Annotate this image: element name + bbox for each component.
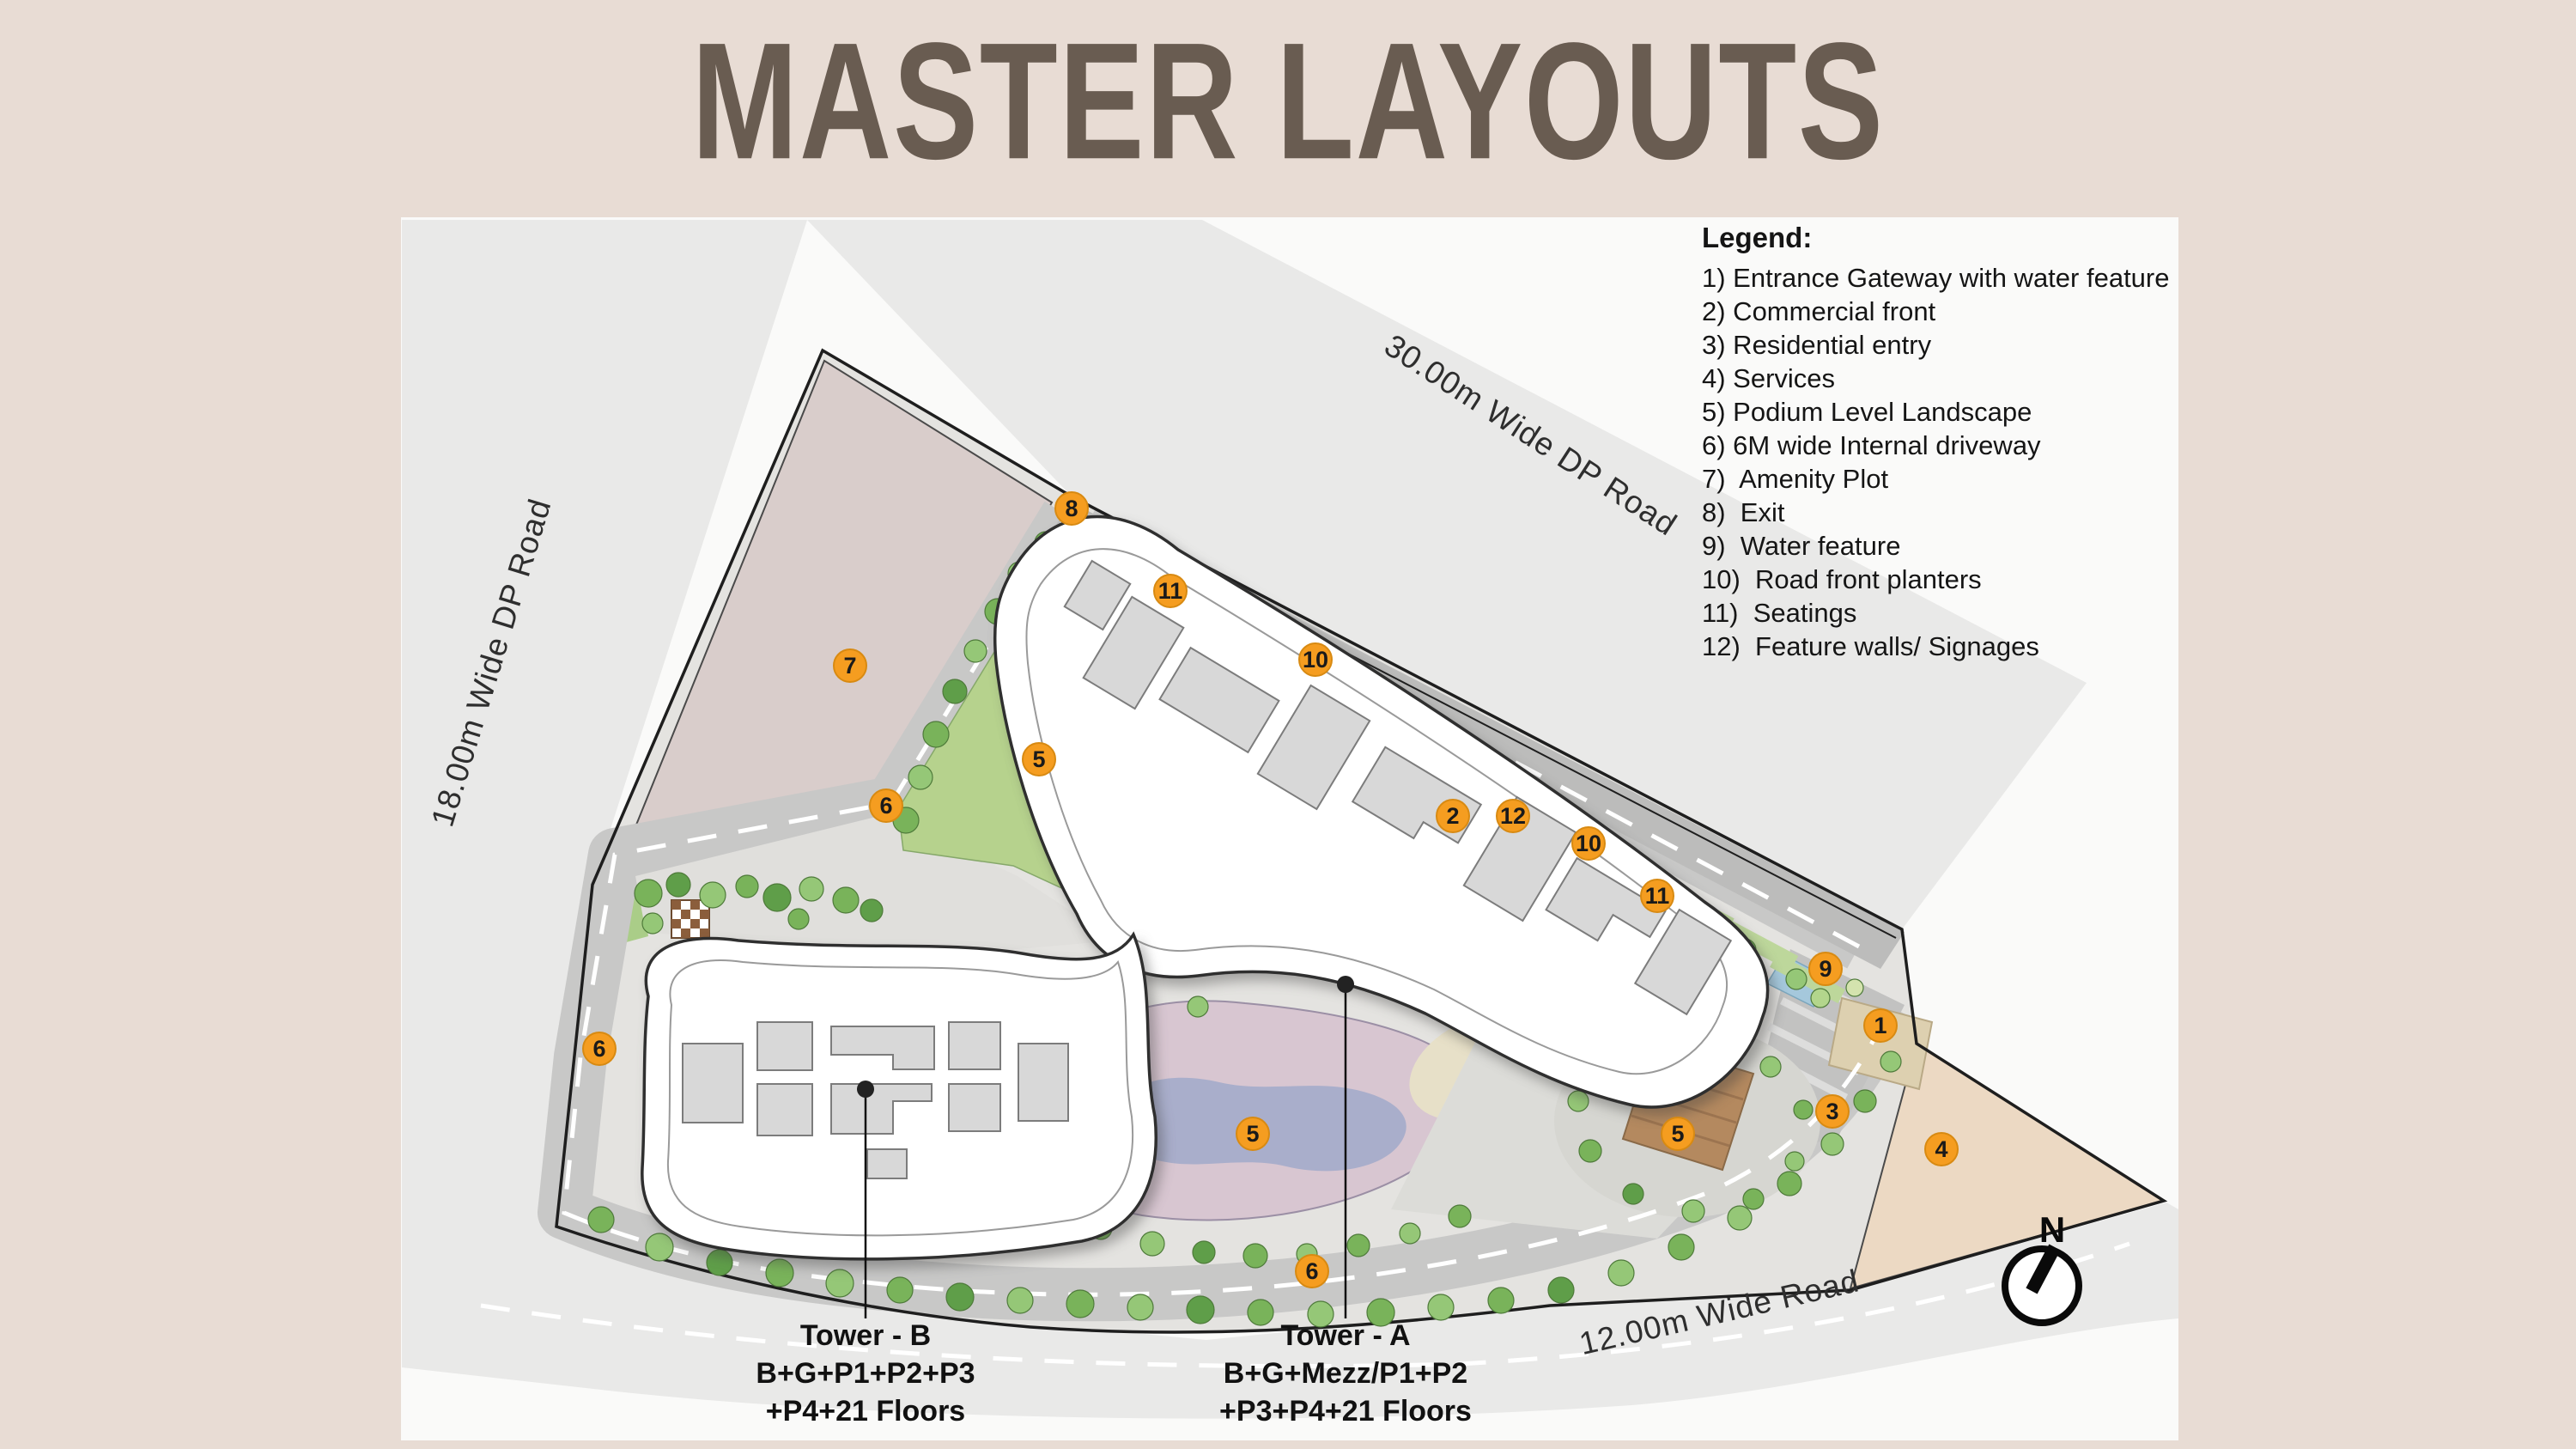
tree-icon: [1880, 1051, 1901, 1072]
svg-text:5: 5: [1671, 1121, 1684, 1147]
tree-icon: [826, 1269, 854, 1297]
plan-marker-5: 5: [1023, 743, 1055, 776]
plan-marker-10: 10: [1572, 827, 1605, 860]
tree-icon: [1140, 1232, 1164, 1256]
tower-b-name: Tower - B: [800, 1319, 931, 1352]
site-plan-drawing: Tower - B B+G+P1+P2+P3 +P4+21 Floors Tow…: [0, 0, 2576, 1449]
tree-icon: [646, 1233, 673, 1261]
tree-icon: [1568, 1091, 1589, 1111]
legend-item: 6) 6M wide Internal driveway: [1702, 429, 2217, 462]
tree-icon: [860, 899, 883, 922]
tower-a-name: Tower - A: [1280, 1319, 1410, 1352]
plan-marker-5: 5: [1236, 1117, 1269, 1150]
tree-icon: [1187, 1296, 1214, 1324]
plan-marker-1: 1: [1864, 1009, 1897, 1042]
tree-icon: [1785, 1152, 1804, 1171]
tree-icon: [1347, 1234, 1370, 1257]
legend-item: 12) Feature walls/ Signages: [1702, 630, 2217, 663]
tree-icon: [588, 1207, 614, 1233]
plan-marker-7: 7: [834, 649, 866, 682]
tree-icon: [1623, 1184, 1643, 1204]
svg-text:5: 5: [1032, 746, 1045, 772]
legend-header: Legend:: [1702, 222, 2217, 254]
tree-icon: [1243, 1244, 1267, 1268]
tree-icon: [1811, 989, 1830, 1008]
plan-marker-8: 8: [1055, 492, 1088, 525]
svg-text:12: 12: [1500, 803, 1526, 829]
tree-icon: [1007, 1288, 1033, 1313]
plan-marker-2: 2: [1437, 800, 1469, 832]
tree-icon: [1488, 1288, 1514, 1313]
svg-text:6: 6: [1305, 1258, 1318, 1284]
tree-icon: [908, 765, 933, 789]
tree-icon: [1188, 996, 1208, 1017]
plan-marker-10: 10: [1299, 643, 1332, 676]
legend-list: 1) Entrance Gateway with water feature2)…: [1702, 261, 2217, 663]
tree-icon: [1786, 969, 1807, 989]
plan-marker-6: 6: [1296, 1255, 1328, 1288]
tree-icon: [1400, 1223, 1420, 1244]
compass-north-label: N: [2039, 1209, 2065, 1250]
tree-icon: [1743, 1189, 1764, 1209]
legend-item: 5) Podium Level Landscape: [1702, 395, 2217, 429]
tree-icon: [707, 1250, 732, 1275]
tree-icon: [1682, 1200, 1704, 1222]
svg-text:4: 4: [1935, 1136, 1947, 1162]
tower-a-spec2: +P3+P4+21 Floors: [1219, 1395, 1472, 1428]
tree-icon: [887, 1277, 913, 1303]
tree-icon: [943, 679, 967, 703]
tree-icon: [923, 721, 949, 747]
legend-item: 9) Water feature: [1702, 529, 2217, 563]
tree-icon: [1449, 1205, 1471, 1227]
tree-icon: [736, 875, 758, 898]
tree-icon: [642, 913, 663, 934]
tree-icon: [964, 640, 987, 662]
tower-a-spec1: B+G+Mezz/P1+P2: [1224, 1357, 1467, 1390]
svg-text:1: 1: [1874, 1013, 1886, 1038]
legend-panel: Legend: 1) Entrance Gateway with water f…: [1702, 222, 2217, 663]
legend-item: 11) Seatings: [1702, 596, 2217, 630]
tower-b-spec1: B+G+P1+P2+P3: [756, 1357, 975, 1390]
legend-item: 7) Amenity Plot: [1702, 462, 2217, 496]
svg-text:6: 6: [592, 1036, 605, 1062]
tree-icon: [1854, 1090, 1876, 1112]
tree-icon: [635, 880, 662, 907]
svg-text:5: 5: [1246, 1121, 1259, 1147]
tree-icon: [1248, 1300, 1273, 1325]
checkered-patio: [671, 900, 709, 938]
tree-icon: [1193, 1241, 1215, 1263]
tree-icon: [1794, 1100, 1813, 1119]
tree-icon: [1760, 1056, 1781, 1077]
plan-marker-6: 6: [870, 789, 902, 822]
svg-text:11: 11: [1645, 883, 1670, 909]
plan-marker-6: 6: [583, 1032, 616, 1065]
tree-icon: [1668, 1234, 1694, 1260]
legend-item: 4) Services: [1702, 362, 2217, 395]
svg-text:8: 8: [1065, 496, 1078, 521]
tree-icon: [1579, 1140, 1601, 1162]
legend-item: 8) Exit: [1702, 496, 2217, 529]
master-layout-page: MASTER LAYOUTS: [0, 0, 2576, 1449]
plan-marker-3: 3: [1816, 1095, 1849, 1128]
tree-icon: [666, 873, 690, 897]
legend-item: 2) Commercial front: [1702, 295, 2217, 328]
tree-icon: [1846, 979, 1863, 996]
tree-icon: [700, 882, 726, 908]
plan-marker-4: 4: [1925, 1133, 1958, 1166]
svg-text:9: 9: [1819, 956, 1832, 982]
tree-icon: [788, 909, 809, 929]
tree-icon: [766, 1259, 793, 1287]
legend-item: 3) Residential entry: [1702, 328, 2217, 362]
legend-item: 10) Road front planters: [1702, 563, 2217, 596]
svg-text:11: 11: [1158, 578, 1183, 604]
tree-icon: [946, 1283, 974, 1311]
svg-text:10: 10: [1303, 647, 1328, 673]
svg-text:10: 10: [1576, 831, 1601, 856]
plan-marker-11: 11: [1154, 575, 1187, 607]
plan-marker-11: 11: [1641, 880, 1674, 912]
legend-item: 1) Entrance Gateway with water feature: [1702, 261, 2217, 295]
tree-icon: [1777, 1172, 1801, 1196]
tree-icon: [1608, 1260, 1634, 1286]
svg-text:7: 7: [843, 653, 856, 679]
svg-text:2: 2: [1446, 803, 1459, 829]
plan-marker-12: 12: [1497, 800, 1529, 832]
tree-icon: [1821, 1133, 1844, 1155]
tree-icon: [1428, 1294, 1454, 1320]
plan-marker-5: 5: [1662, 1117, 1694, 1150]
tree-icon: [1066, 1290, 1094, 1318]
tree-icon: [1728, 1206, 1752, 1230]
tree-icon: [833, 887, 859, 913]
tree-icon: [1127, 1294, 1153, 1320]
tree-icon: [763, 884, 791, 911]
tower-b-spec2: +P4+21 Floors: [766, 1395, 965, 1428]
tree-icon: [799, 877, 823, 901]
tree-icon: [1548, 1277, 1574, 1303]
plan-marker-9: 9: [1809, 953, 1842, 985]
svg-text:6: 6: [879, 793, 892, 819]
svg-text:3: 3: [1826, 1099, 1838, 1124]
